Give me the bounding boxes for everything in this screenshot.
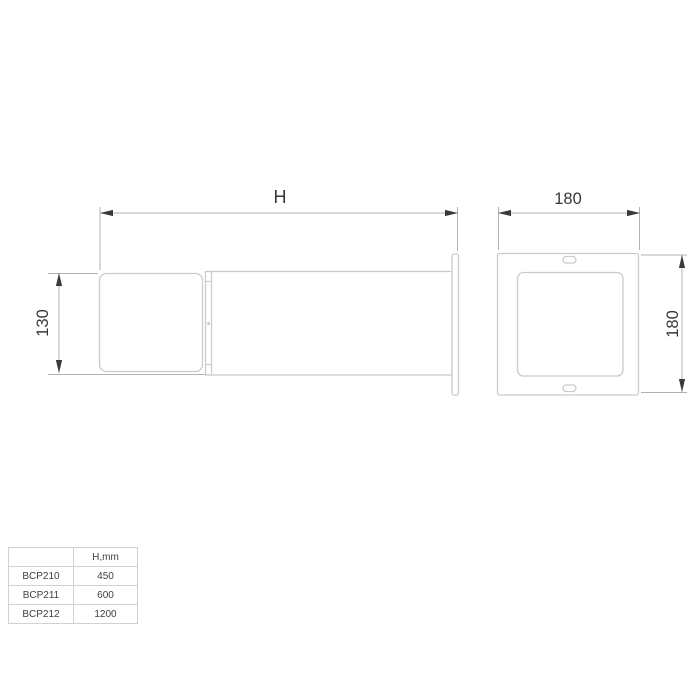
- dim-130-arrow-bottom: [56, 360, 62, 373]
- side-view-joint-screw-dot: [207, 322, 210, 325]
- dim-180-width: 180: [498, 190, 640, 250]
- height-cell: 1200: [74, 605, 138, 624]
- spec-table-header-row: H,mm: [9, 548, 138, 567]
- side-view-mounting-flange: [452, 254, 459, 395]
- table-row: BCP210 450: [9, 567, 138, 586]
- dim-130-arrow-top: [56, 273, 62, 286]
- spec-table-header-empty: [9, 548, 74, 567]
- model-cell: BCP212: [9, 605, 74, 624]
- dim-h-label: H: [274, 187, 287, 207]
- side-view-pole: [206, 272, 453, 376]
- table-row: BCP212 1200: [9, 605, 138, 624]
- side-view: [100, 254, 459, 395]
- front-view-fixing-slot-top: [563, 257, 576, 264]
- technical-drawing: H 130 180: [0, 0, 700, 460]
- model-cell: BCP211: [9, 586, 74, 605]
- model-cell: BCP210: [9, 567, 74, 586]
- dim-130-label: 130: [34, 309, 52, 337]
- dim-180h-arrow-top: [679, 255, 685, 268]
- dim-180w-arrow-left: [498, 210, 511, 216]
- dim-h: H: [100, 187, 458, 270]
- side-view-head: [100, 274, 203, 372]
- spec-table: H,mm BCP210 450 BCP211 600 BCP212 1200: [8, 547, 138, 624]
- dim-180h-arrow-bottom: [679, 379, 685, 392]
- dim-h-arrow-right: [445, 210, 458, 216]
- dim-180h-label: 180: [664, 310, 682, 338]
- dim-180w-arrow-right: [627, 210, 640, 216]
- page: H 130 180: [0, 0, 700, 700]
- dim-180w-label: 180: [554, 190, 582, 208]
- height-cell: 600: [74, 586, 138, 605]
- table-row: BCP211 600: [9, 586, 138, 605]
- front-view-pole-outline: [518, 273, 624, 377]
- height-cell: 450: [74, 567, 138, 586]
- front-view: [498, 254, 639, 396]
- spec-table-header-hmm: H,mm: [74, 548, 138, 567]
- dim-180-height: 180: [641, 255, 687, 393]
- front-view-fixing-slot-bottom: [563, 385, 576, 392]
- dim-h-arrow-left: [100, 210, 113, 216]
